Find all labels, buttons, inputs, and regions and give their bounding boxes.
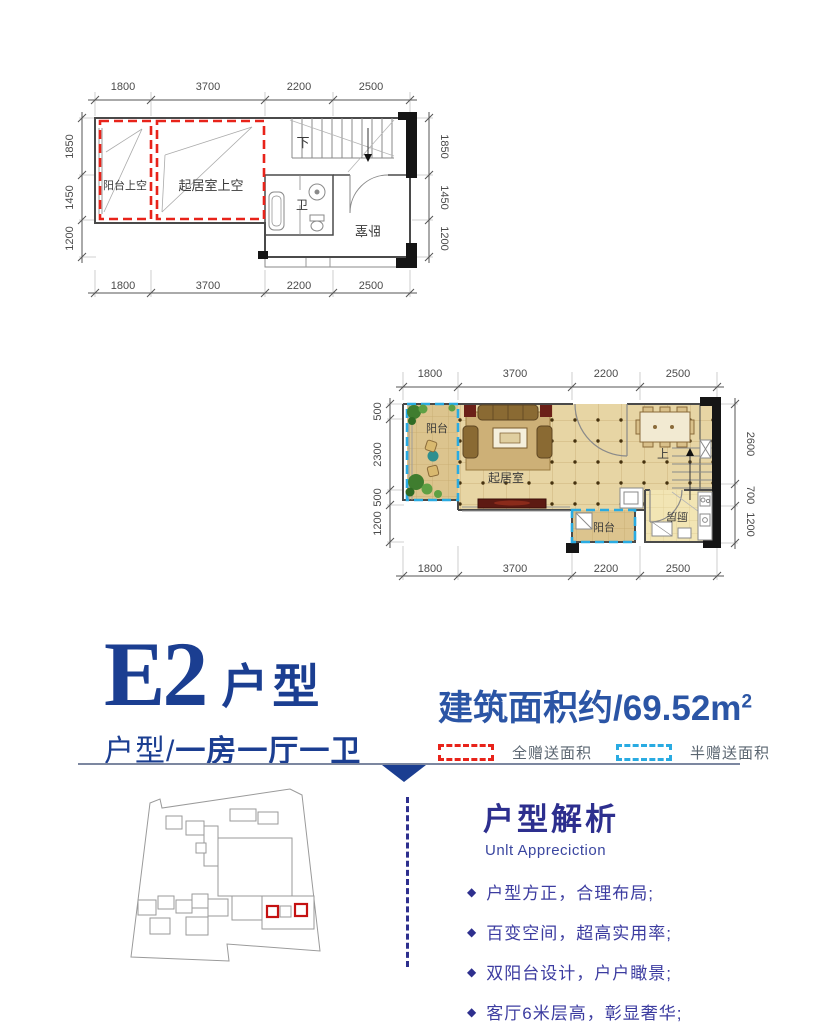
window-x-icon [700,440,711,458]
built-area-text: 建筑面积约/69.52m2 [438,680,770,731]
diamond-bullet-icon: ◆ [467,885,476,899]
bullet-text: 户型方正，合理布局; [486,879,654,904]
tv-console [478,499,546,508]
analysis-heading-en: Unlt Appreciction [485,842,795,859]
bullet-text: 百变空间，超高实用率; [486,919,672,944]
dim-text: 2200 [287,280,311,292]
unit-title-row: E2 户型 [104,636,361,712]
dim-text: 1200 [64,226,76,250]
upper-wall-blocks [258,112,417,268]
room-label-bath: 卫 [296,198,308,212]
dim-text: 500 [372,488,384,506]
list-item: ◆ 百变空间，超高实用率; [455,919,795,944]
flyer-page: 1800 3700 2200 2500 1800 3700 2200 2500 … [0,0,818,1030]
diamond-bullet-icon: ◆ [467,965,476,979]
dim-text: 700 [744,486,756,504]
dim-text: 1800 [418,368,442,380]
list-item: ◆ 双阳台设计，户户瞰景; [455,959,795,984]
dim-text: 2500 [359,280,383,292]
room-label-living: 起居室 [488,470,524,485]
diamond-bullet-icon: ◆ [467,1005,476,1019]
full-gift-label: 全赠送面积 [512,742,592,763]
room-label-stair-down: 下 [296,135,309,150]
dim-text: 1200 [372,511,384,535]
vertical-dashed-divider [406,797,409,967]
analysis-heading: 户型解析 [483,794,795,839]
room-label-stair-up: 上 [657,447,669,461]
room-label-balcony-bottom: 阳台 [593,520,615,534]
dim-text: 1800 [111,81,135,93]
unit-code-suffix: 户型 [221,662,323,712]
dim-text: 3700 [503,563,527,575]
dim-text: 2500 [666,368,690,380]
sofa-set [463,405,552,470]
half-gift-swatch-icon [616,744,672,761]
room-label-bedroom: 卧室 [355,223,381,238]
room-label-balcony-left: 阳台 [426,421,448,435]
dim-text: 1800 [111,280,135,292]
unit-analysis-section: 户型解析 Unlt Appreciction ◆ 户型方正，合理布局; ◆ 百变… [455,794,795,1030]
title-block: E2 户型 户型/一房一厅一卫 [104,636,361,770]
room-label-balcony-void: 阳台上空 [103,178,147,192]
dim-text: 500 [372,402,384,420]
bedroom-door-arc [350,175,388,213]
dim-text: 1800 [418,563,442,575]
dim-text: 2600 [744,432,756,456]
dim-text: 2500 [666,563,690,575]
dim-text: 2200 [594,368,618,380]
built-area-value: 建筑面积约/69.52m [438,689,741,728]
dim-text: 1450 [64,185,76,209]
dining-table [636,407,694,447]
dim-text: 1850 [64,134,76,158]
dim-text: 1450 [438,185,450,209]
area-block: 建筑面积约/69.52m2 全赠送面积 半赠送面积 [438,680,770,763]
list-item: ◆ 客厅6米层高，彰显奢华; [455,999,795,1024]
room-label-kitchen: 厨房 [666,510,688,523]
area-superscript: 2 [741,691,752,712]
bullet-text: 双阳台设计，户户瞰景; [486,959,672,984]
lower-floor-plan: 1800 3700 2200 2500 1800 3700 2200 2500 … [350,350,780,590]
upper-walls [95,118,410,267]
dim-text: 2200 [594,563,618,575]
dim-text: 3700 [196,81,220,93]
dim-text: 1850 [438,134,450,158]
list-item: ◆ 户型方正，合理布局; [455,879,795,904]
dim-text: 1200 [744,512,756,536]
washer [576,513,592,529]
gift-area-legend: 全赠送面积 半赠送面积 [438,742,770,763]
void-diagonals [104,127,252,212]
dim-text: 3700 [196,280,220,292]
upper-floor-plan: 1800 3700 2200 2500 1800 3700 2200 2500 … [55,68,450,310]
dim-text: 2500 [359,81,383,93]
full-gift-swatch-icon [438,744,494,761]
site-plan-sketch [95,778,345,1018]
dim-text: 1200 [438,226,450,250]
room-label-living-void: 起居室上空 [178,178,243,193]
cabinet [620,488,643,508]
half-gift-label: 半赠送面积 [690,742,770,763]
down-arrow-icon [382,765,426,782]
bullet-text: 客厅6米层高，彰显奢华; [486,999,682,1024]
dim-text: 2300 [372,442,384,466]
dim-text: 3700 [503,368,527,380]
diamond-bullet-icon: ◆ [467,925,476,939]
unit-code: E2 [104,636,205,712]
dim-text: 2200 [287,81,311,93]
analysis-bullet-list: ◆ 户型方正，合理布局; ◆ 百变空间，超高实用率; ◆ 双阳台设计，户户瞰景;… [455,879,795,1024]
full-gift-zones [100,121,264,219]
upper-dim-extensions [79,92,433,297]
